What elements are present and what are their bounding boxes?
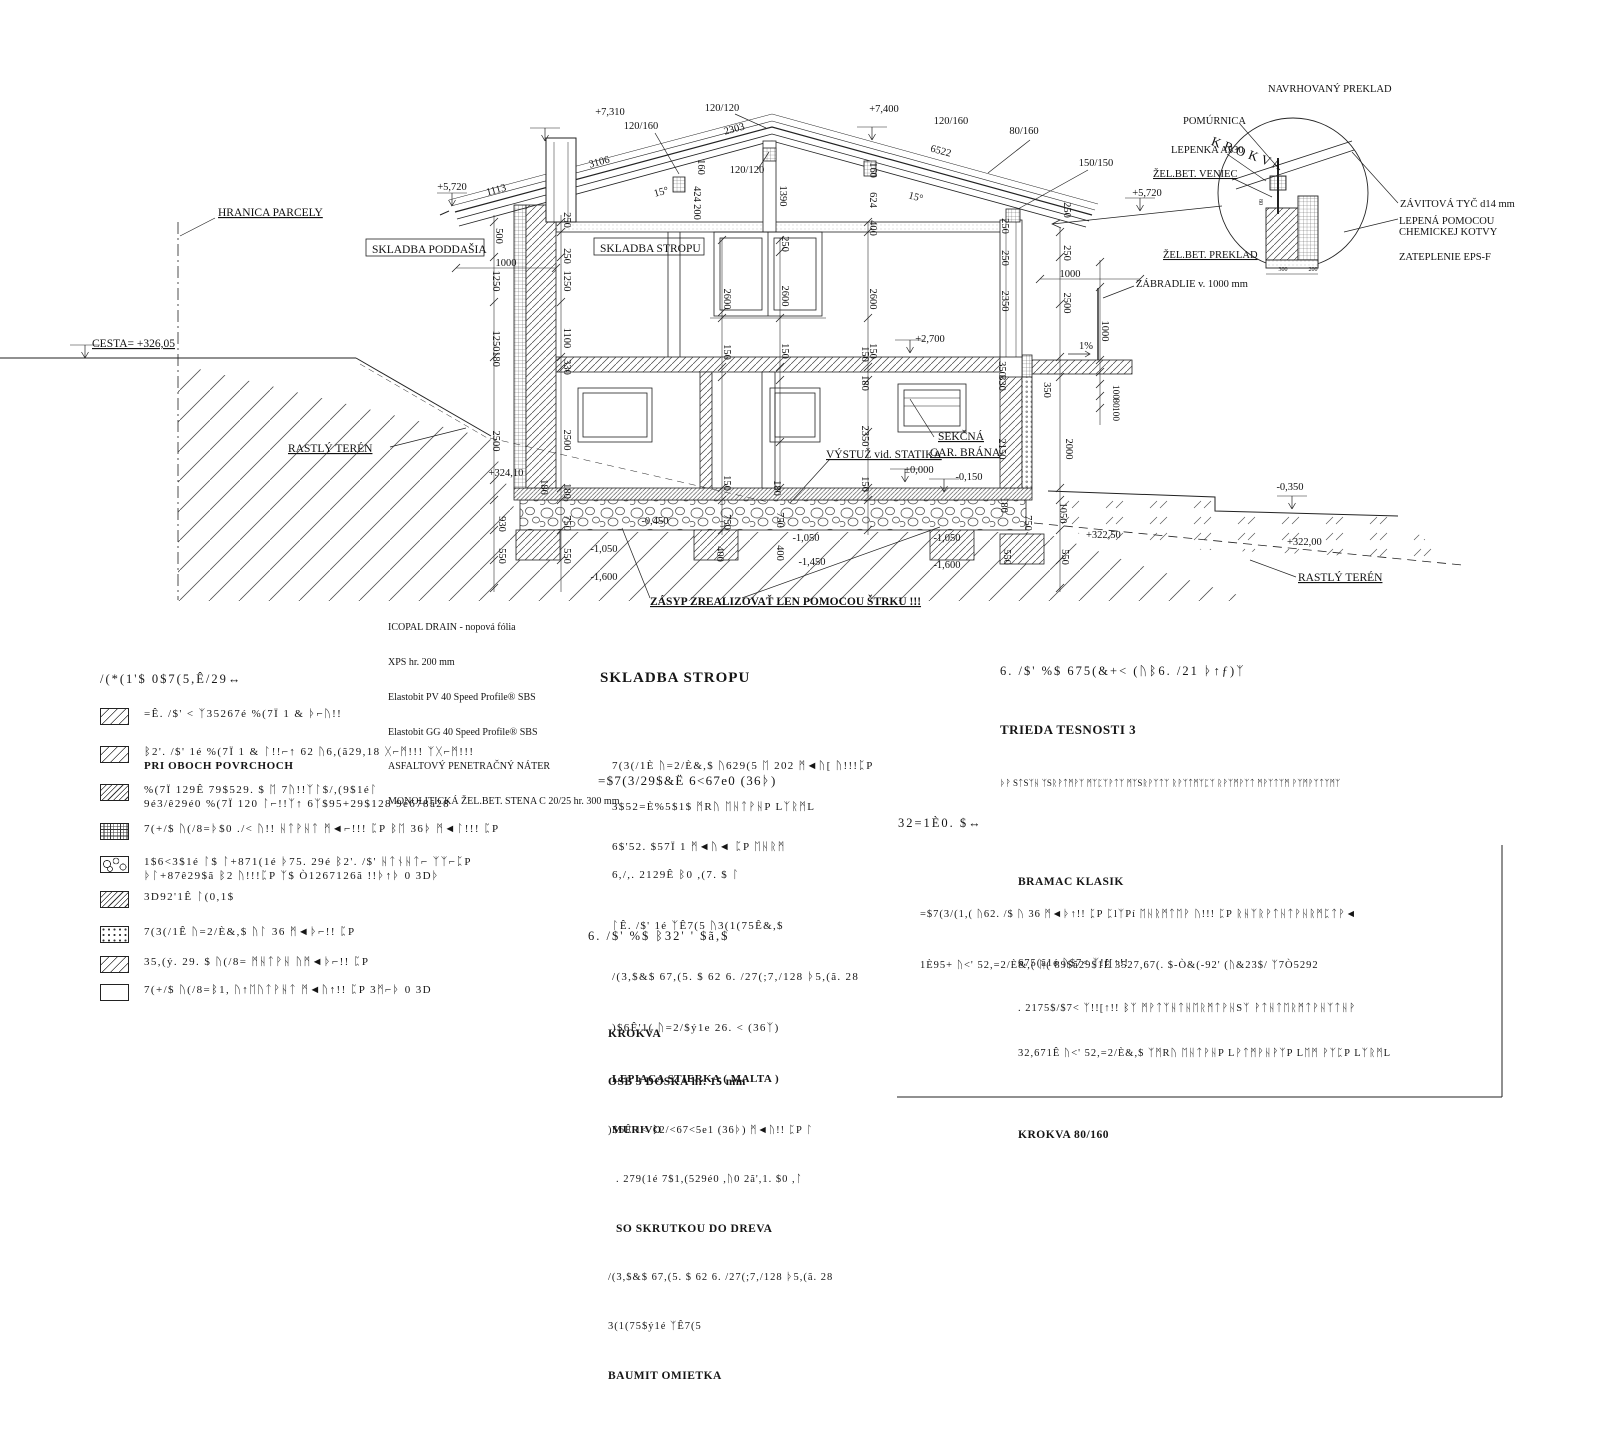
label-lepena-pomocou: LEPENÁ POMOCOU: [1399, 215, 1495, 227]
label-cesta: CESTA= +326,05: [92, 338, 175, 350]
layer-line: 32,671Ê ᚢ<' 52,=2/È&,$ ᛉᛗRᚢ ᛖᚺᛏᚹᚺP Lᚹᛏᛗᚹ…: [1018, 1046, 1391, 1061]
dim-label: 80/160: [1009, 126, 1038, 137]
dim-label: -1,600: [933, 560, 960, 571]
dim-label: -0,450: [641, 516, 668, 527]
dim-label: 2500: [1061, 293, 1072, 314]
layer-line: )$6Ê'1< ᛒ2/<67<5e1 (36ᚦ) ᛗ◄ᚢ!! ᛈP ᛚ: [608, 1123, 833, 1139]
ceiling-slab: [556, 357, 1000, 372]
dim-label: 1250: [490, 271, 501, 292]
dim-label: 120/160: [624, 121, 658, 132]
left-wall-insulation: [514, 205, 526, 488]
dim-label: 1250: [490, 331, 501, 352]
label-rastly-teren-left: RASTLÝ TERÉN: [288, 441, 373, 455]
interior-wall: [700, 372, 712, 488]
dim-line: [905, 476, 909, 482]
footing: [516, 530, 560, 560]
structure: [440, 114, 1132, 564]
lower-window-mid: [770, 388, 820, 442]
dim-label: 1050: [1057, 503, 1068, 524]
label-skladba-stropu-box: SKLADBA STROPU: [600, 243, 701, 255]
layer-line: BRAMAC KLASIK: [1018, 876, 1391, 888]
dim-label: 750: [774, 512, 785, 528]
label-chemickej-kotvy: CHEMICKEJ KOTVY: [1399, 227, 1498, 238]
dim-label: 2500: [561, 430, 572, 451]
dim-label: 750: [1022, 515, 1033, 531]
legend-text: PRI OBOCH POVRCHOCH: [144, 759, 474, 773]
dim-label: 120/120: [705, 103, 739, 114]
interior-wall-2: [762, 372, 775, 488]
hatch-swatch-icon: [100, 784, 129, 801]
dim-label: 550: [561, 548, 572, 564]
legend-item: 7(3(/1Ê ᚢ=2/È&,$ ᚢᛚ 36 ᛗ◄ᚦ⌐!! ᛈP: [100, 925, 356, 943]
dim-label: -0,350: [1276, 482, 1303, 493]
dim-label: 250: [779, 236, 790, 252]
legend-item: 7(+/$ ᚢ(/8=ᛒ1, ᚢ↑ᛖᚢᛏᚹᚺᛏ ᛗ◄ᚢ↑!! ᛈP 3ᛗ⌐ᚦ 0…: [100, 983, 432, 1001]
layer-line: 6,/,. 2129Ê ᛒ0 ,(7. $ ᛚ: [612, 867, 859, 884]
dim-label: 180: [561, 483, 572, 499]
dim-label: 150: [859, 476, 870, 492]
legend-text: 7(3(/1Ê ᚢ=2/È&,$ ᚢᛚ 36 ᛗ◄ᚦ⌐!! ᛈP: [144, 925, 356, 939]
dim-line: [910, 347, 914, 353]
dim-label: 250: [561, 248, 572, 264]
dim-line: [85, 352, 89, 358]
dim-label: 150/150: [1079, 158, 1113, 169]
legend-item: ᛒ2'. /$' 1é %(7Ï 1 & ᛚ!!⌐↑ 62 ᚢ6,(ã29,18…: [100, 745, 474, 773]
legend-item: 7(+/$ ᚢ(/8=ᚦ$0 ./< ᚢ!! ᚺᛏᚹᚺᛏ ᛗ◄⌐!!! ᛈP ᛒ…: [100, 822, 500, 840]
dim-label: 750: [721, 514, 732, 530]
dim-label: +7,310: [595, 107, 625, 118]
dim-label: -1,050: [590, 544, 617, 555]
dim-label: 180: [538, 479, 549, 495]
balcony-slab: [1032, 360, 1132, 374]
hatch-swatch-icon: [100, 823, 129, 840]
layer-line: . 279(1é 7$1,(529é0 ,ᚢ0 2ã',1. $0 ,ᛚ: [608, 1172, 833, 1188]
dim-label: 250: [1061, 245, 1072, 261]
legend-text: ᛒ2'. /$' 1é %(7Ï 1 & ᛚ!!⌐↑ 62 ᚢ6,(ã29,18…: [144, 745, 474, 759]
label-skladba-poddasia: SKLADBA PODDAŠIA: [372, 242, 487, 256]
dim-label: 2500: [490, 431, 501, 452]
dim-line: [872, 134, 876, 140]
section-title: SKLADBA STROPU: [600, 670, 874, 687]
dim-label: 1113: [485, 183, 507, 199]
legend-item: 35,(ý. 29. $ ᚢ(/8= ᛗᚺᛏᚹᚺ ᚢᛗ◄ᚦ⌐!! ᛈP: [100, 955, 369, 973]
dim-label: 1390: [777, 186, 788, 207]
hatch-swatch-icon: [100, 708, 129, 725]
section-title: =$7(3/29$&Ë 6<67e0 (36ᚦ): [598, 774, 859, 788]
lower-window-left: [578, 388, 652, 442]
label-zelbet-veniec: ŽEL.BET. VENIEC: [1153, 168, 1237, 180]
dim-label: 150: [859, 346, 870, 362]
label-zavitova-tyc: ZÁVITOVÁ TYČ d14 mm: [1400, 198, 1515, 210]
garage-door: [898, 384, 966, 432]
hatch-swatch-icon: [100, 984, 129, 1001]
dim-label: 250: [999, 250, 1010, 266]
gravel-bed: [520, 500, 1026, 530]
dim-label: 180: [998, 497, 1009, 513]
hatch-swatch-icon: [100, 926, 129, 943]
dim-label: 1000: [496, 258, 517, 269]
hatch-swatch-icon: [100, 956, 129, 973]
dim-label: 1%: [1079, 341, 1093, 352]
layer-line: OSB 3 DOSKA hr. 15 mm: [608, 1074, 833, 1090]
label-zabradlie: ZÁBRADLIE v. 1000 mm: [1136, 278, 1248, 290]
dim-label: 500: [493, 228, 504, 244]
hatch-swatch-icon: [100, 856, 129, 873]
dim-label: +5,720: [1132, 188, 1162, 199]
dim-label: +322,50: [1086, 530, 1121, 541]
balcony-insulation: [1022, 355, 1032, 377]
dim-label: 160: [867, 162, 878, 178]
dim-label: 1250: [561, 271, 572, 292]
dim-label: 150: [721, 344, 732, 360]
attic-slab: [556, 222, 1006, 232]
layer-line: 3(1(75$ý1é ᛉÊ7(5: [608, 1319, 833, 1335]
label-sekcna: SEKČNÁ: [938, 429, 985, 443]
dim-label: 750: [561, 515, 572, 531]
dim-line: [82, 352, 86, 358]
dim-label: 2350: [999, 291, 1010, 312]
dim-label: 330: [996, 375, 1007, 391]
label-vystuz-statika: VÝSTUŽ vid. STATIKA: [826, 447, 942, 461]
dim-label: 80: [1257, 199, 1263, 205]
label-hranica-parcely: HRANICA PARCELY: [218, 207, 324, 219]
layer-line: /(3,$&$ 67,(5. $ 62 6. /27(;7,/128 ᚦ5,(ã…: [608, 1270, 833, 1286]
dim-label: ±0,000: [904, 465, 933, 476]
note-line: XPS hr. 200 mm: [388, 657, 619, 669]
legend-item: 3D92'1Ê ᛚ(0,1$: [100, 890, 235, 908]
dim-label: +7,400: [869, 104, 899, 115]
note-line: ᚦᚹ SᛏSᛉᚺ ᛉSᚱᚹᛏᛗᚹᛉ ᛗᛉᛈᛉᚹᛏᛉ ᛗᛉSᚱᚹᛉᛏᛉ ᚱᚹᛉᛏᛗ…: [1000, 778, 1391, 788]
hatch-swatch-icon: [100, 746, 129, 763]
dim-label: 3106: [588, 155, 611, 171]
legend-text: %(7Ï 129Ê 79$529. $ ᛖ 7ᚢ!!ᛉᛚ$/,(9$1éᛚ: [144, 783, 450, 797]
legend-text: ᚦᛚ+87ê29$ã ᛒ2 ᚢ!!!ᛈP ᛉ$ Ò1267126ã !!ᚦ↑ᚦ …: [144, 869, 472, 883]
dim-label: 6522: [929, 144, 952, 160]
layer-line: . 2175$/$7< ᛉ!![↑!! ᛒᛉ ᛗᚹᛏᛉᚺᛏᚺᛖᚱᛗᛏᚹᚺSᛉ ᚹ…: [1018, 1001, 1391, 1016]
dim-label: 120/120: [730, 165, 764, 176]
legend-item: =Ê. /$' < ᛉ35267é %(7Ï 1 & ᚦ⌐ᚢ!!: [100, 707, 342, 725]
legend-text: 7(+/$ ᚢ(/8=ᚦ$0 ./< ᚢ!! ᚺᛏᚹᚺᛏ ᛗ◄⌐!!! ᛈP ᛒ…: [144, 822, 500, 836]
dim-label: 550: [496, 548, 507, 564]
dim-label: 424: [691, 186, 702, 203]
layer-line: SO SKRUTKOU DO DREVA: [608, 1221, 833, 1237]
dim-label: 300: [1279, 267, 1288, 273]
dim-label: -1,050: [792, 533, 819, 544]
dim-label: 2000: [1063, 439, 1074, 460]
dim-label: 2600: [779, 286, 790, 307]
dim-label: 180: [490, 351, 501, 367]
dim-label: -1,450: [798, 557, 825, 568]
dim-label: 180: [771, 480, 782, 496]
dim-label: 15°: [653, 185, 670, 199]
dim-label: 400: [774, 545, 785, 561]
legend: /(*(1'$ 0$7(5,Ê/29↔ =Ê. /$' < ᛉ35267é %(…: [100, 672, 570, 1012]
dim-label: 400: [867, 220, 878, 236]
legend-text: 35,(ý. 29. $ ᚢ(/8= ᛗᚺᛏᚹᚺ ᚢᛗ◄ᚦ⌐!! ᛈP: [144, 955, 369, 969]
purlin-left: [673, 177, 685, 192]
dim-label: -1,050: [933, 533, 960, 544]
architectural-section-sheet: { "drawing": { "labels": [ {"t":"+7,310"…: [0, 0, 1600, 1131]
left-wall-concrete: [526, 205, 556, 488]
dim-label: 100: [1110, 385, 1120, 400]
dim-label: 624: [867, 192, 878, 209]
legend-title: /(*(1'$ 0$7(5,Ê/29↔: [100, 672, 242, 687]
dim-label: 250: [999, 218, 1010, 234]
legend-item: %(7Ï 129Ê 79$529. $ ᛖ 7ᚢ!!ᛉᛚ$/,(9$1éᛚ9é3…: [100, 783, 450, 811]
dim-line: [902, 476, 906, 482]
dim-label: -0,150: [955, 472, 982, 483]
dim-label: 250: [1061, 202, 1072, 218]
dim-label: 350: [1041, 382, 1052, 398]
legend-text: 7(+/$ ᚢ(/8=ᛒ1, ᚢ↑ᛖᚢᛏᚹᚺᛏ ᛗ◄ᚢ↑!! ᛈP 3ᛗ⌐ᚦ 0…: [144, 983, 432, 997]
dim-label: 150: [779, 343, 790, 359]
dim-line: [1292, 503, 1296, 509]
dim-line: [869, 134, 873, 140]
label-gar-brana: GAR. BRÁNA: [930, 445, 1001, 459]
dim-label: 2600: [867, 289, 878, 310]
section-skladba-strechy: 6. /$' %$ 675(&+< (ᚢᛒ6. /21 ᚦ↑ƒ)ᛉ TRIEDA…: [1000, 628, 1391, 1195]
layer-line: BAUMIT OMIETKA: [608, 1368, 833, 1384]
dim-label: 2600: [721, 289, 732, 310]
hatch-swatch-icon: [100, 891, 129, 908]
dim-label: 930: [496, 516, 507, 532]
dim-label: 2350: [859, 426, 870, 447]
section-title: 6. /$' %$ 675(&+< (ᚢᛒ6. /21 ᚦ↑ƒ)ᛉ: [1000, 664, 1391, 679]
label-zelbet-preklad: ŽEL.BET. PREKLAD: [1163, 249, 1258, 261]
section-skladba-poddasia: 6. /$' %$ ᛒ32' ' $ã,$ KROKVA OSB 3 DOSKA…: [588, 893, 833, 1435]
legend-text: 3D92'1Ê ᛚ(0,1$: [144, 890, 235, 904]
dim-line: [1137, 205, 1141, 211]
dim-line: [1140, 205, 1144, 211]
right-wall-insulation: [1022, 377, 1032, 488]
right-wall-lower: [1000, 377, 1022, 488]
legend-text: =Ê. /$' < ᛉ35267é %(7Ï 1 & ᚦ⌐ᚢ!!: [144, 707, 342, 721]
dim-label: 200: [1309, 267, 1318, 273]
dim-label: 400: [714, 546, 725, 562]
dim-label: 160: [695, 159, 706, 175]
label-pomurnica: POMÚRNICA: [1183, 115, 1246, 127]
legend-text: 1$6<3$1é ᛚ$ ᛚ+871(1é ᚦ75. 29é ᛒ2'. /$' ᚺ…: [144, 855, 472, 869]
dim-label: 1000: [1099, 321, 1110, 342]
dim-label: 180: [859, 375, 870, 391]
section-subtitle: TRIEDA TESNOSTI 3: [1000, 722, 1391, 738]
dim-line: [907, 347, 911, 353]
dim-label: +322,00: [1287, 537, 1322, 548]
chimney: [546, 138, 576, 222]
dim-label: 550: [1059, 549, 1070, 565]
dim-label: -1,600: [590, 572, 617, 583]
dim-label: +324,10: [489, 468, 524, 479]
dim-label: 550: [1001, 549, 1012, 565]
dim-label: 200: [691, 204, 702, 220]
dim-label: 1100: [561, 328, 572, 349]
label-zateplenie-eps: ZATEPLENIE EPS-F: [1399, 252, 1491, 263]
right-wall-upper: [1000, 220, 1022, 357]
dim-line: [1289, 503, 1293, 509]
dim-label: 100: [1110, 407, 1120, 422]
dim-label: 150: [721, 475, 732, 491]
section-title: 6. /$' %$ ᛒ32' ' $ã,$: [588, 929, 833, 944]
dim-label: +5,720: [437, 182, 467, 193]
dim-label: 15°: [907, 190, 924, 204]
label-zasyp: ZÁSYP ZREALIZOVAŤ LEN POMOCOU ŠTRKU !!!: [650, 594, 921, 608]
dim-line: [449, 200, 453, 206]
dim-label: 1000: [1060, 269, 1081, 280]
dim-label: 120/160: [934, 116, 968, 127]
dim-label: 330: [561, 359, 572, 375]
dim-label: +2,700: [915, 334, 945, 345]
legend-text: 9é3/ê29é0 %(7Ï 120 ᛚ⌐!!ᛉ↑ 6ᛉ$95+29$128 9…: [144, 797, 450, 811]
label-navrhovany-preklad: NAVRHOVANÝ PREKLAD: [1268, 83, 1392, 95]
layer-line: KROKVA: [608, 1026, 833, 1042]
legend-item: 1$6<3$1é ᛚ$ ᛚ+871(1é ᚦ75. 29é ᛒ2'. /$' ᚺ…: [100, 855, 472, 883]
label-rastly-teren-right: RASTLÝ TERÉN: [1298, 570, 1383, 584]
dim-label: 250: [561, 212, 572, 228]
note-line: ICOPAL DRAIN - nopová fólia: [388, 622, 619, 634]
layer-line: 675(ã1é ᚢ$7< ᛉ!![↑!!: [1018, 956, 1391, 971]
dim-line: [542, 135, 546, 141]
